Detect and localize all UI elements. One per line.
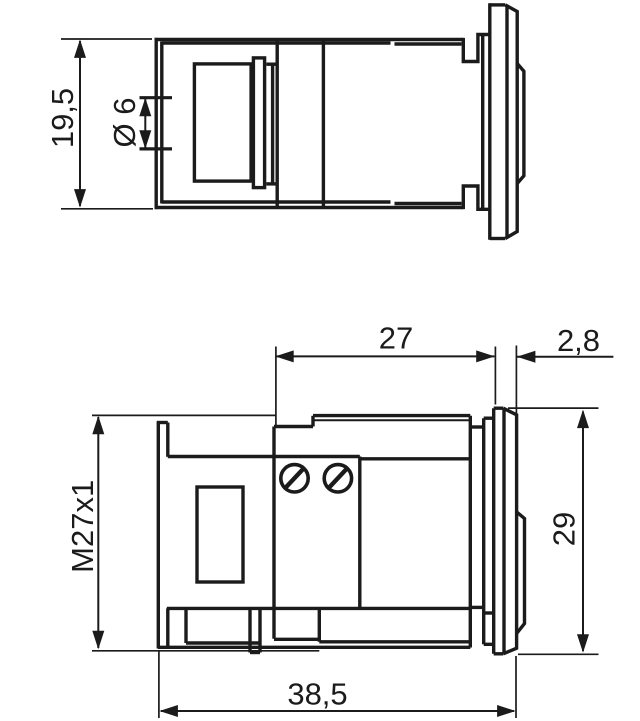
svg-text:38,5: 38,5: [287, 677, 347, 712]
svg-text:M27x1: M27x1: [65, 480, 100, 573]
svg-text:2,8: 2,8: [557, 323, 600, 358]
svg-text:19,5: 19,5: [45, 88, 80, 148]
svg-text:Ø 6: Ø 6: [107, 98, 142, 148]
svg-text:29: 29: [547, 512, 582, 546]
svg-text:27: 27: [379, 321, 413, 356]
